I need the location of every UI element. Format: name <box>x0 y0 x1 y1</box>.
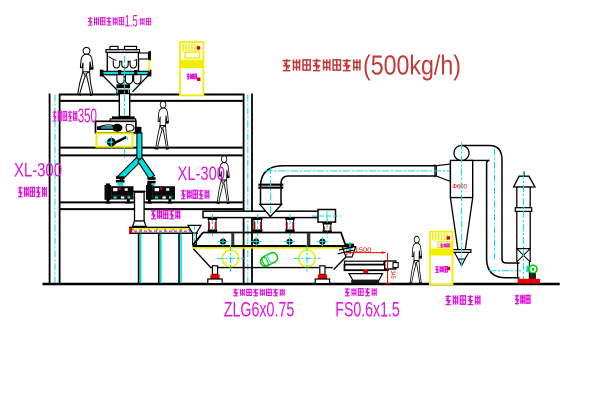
svg-text:Φ600: Φ600 <box>452 183 467 190</box>
svg-text:1500: 1500 <box>355 247 372 254</box>
svg-text:FS0.6x1.5: FS0.6x1.5 <box>335 299 400 322</box>
svg-text:1.5: 1.5 <box>125 11 138 30</box>
svg-text:ZLG6x0.75: ZLG6x0.75 <box>224 299 294 322</box>
svg-text:XL-300: XL-300 <box>14 160 62 181</box>
svg-text:350: 350 <box>78 106 97 128</box>
svg-text:XL-300: XL-300 <box>178 164 226 185</box>
svg-text:(500kg/h): (500kg/h) <box>363 50 461 81</box>
svg-text:345: 345 <box>389 271 395 280</box>
